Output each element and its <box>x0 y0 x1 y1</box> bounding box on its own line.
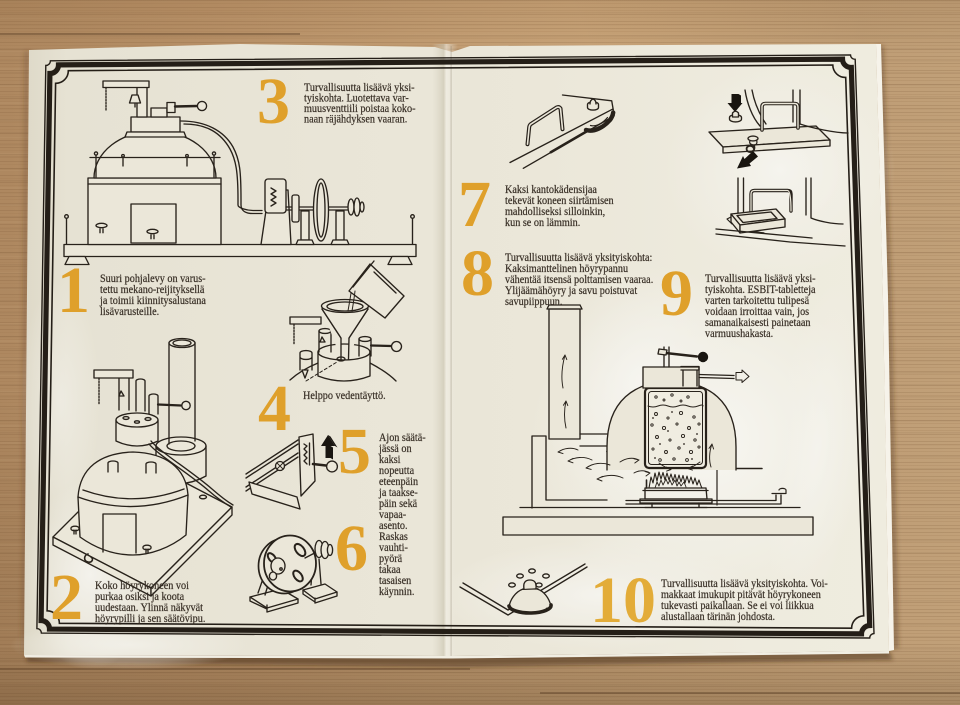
svg-text:1: 1 <box>57 254 90 327</box>
svg-text:8: 8 <box>461 237 494 310</box>
svg-text:9: 9 <box>660 257 693 330</box>
svg-text:Helppo vedentäyttö.: Helppo vedentäyttö. <box>303 389 386 402</box>
svg-text:varmuushakasta.: varmuushakasta. <box>705 327 773 340</box>
svg-text:5: 5 <box>338 415 371 488</box>
svg-text:alustallaan tärinän johdosta.: alustallaan tärinän johdosta. <box>661 610 775 623</box>
svg-text:kun se on lämmin.: kun se on lämmin. <box>505 216 580 229</box>
svg-text:2: 2 <box>50 561 83 634</box>
svg-text:6: 6 <box>335 512 368 585</box>
svg-text:10: 10 <box>590 564 656 637</box>
svg-text:höyrypilli ja sen säätövipu.: höyrypilli ja sen säätövipu. <box>95 612 205 625</box>
svg-text:7: 7 <box>458 168 491 241</box>
svg-text:käynnin.: käynnin. <box>379 585 414 598</box>
svg-text:savupiippuun.: savupiippuun. <box>505 295 562 308</box>
svg-text:3: 3 <box>257 65 290 138</box>
svg-text:4: 4 <box>258 372 291 445</box>
svg-text:lisävarusteille.: lisävarusteille. <box>100 305 159 318</box>
svg-text:naan räjähdyksen vaaran.: naan räjähdyksen vaaran. <box>304 113 407 126</box>
